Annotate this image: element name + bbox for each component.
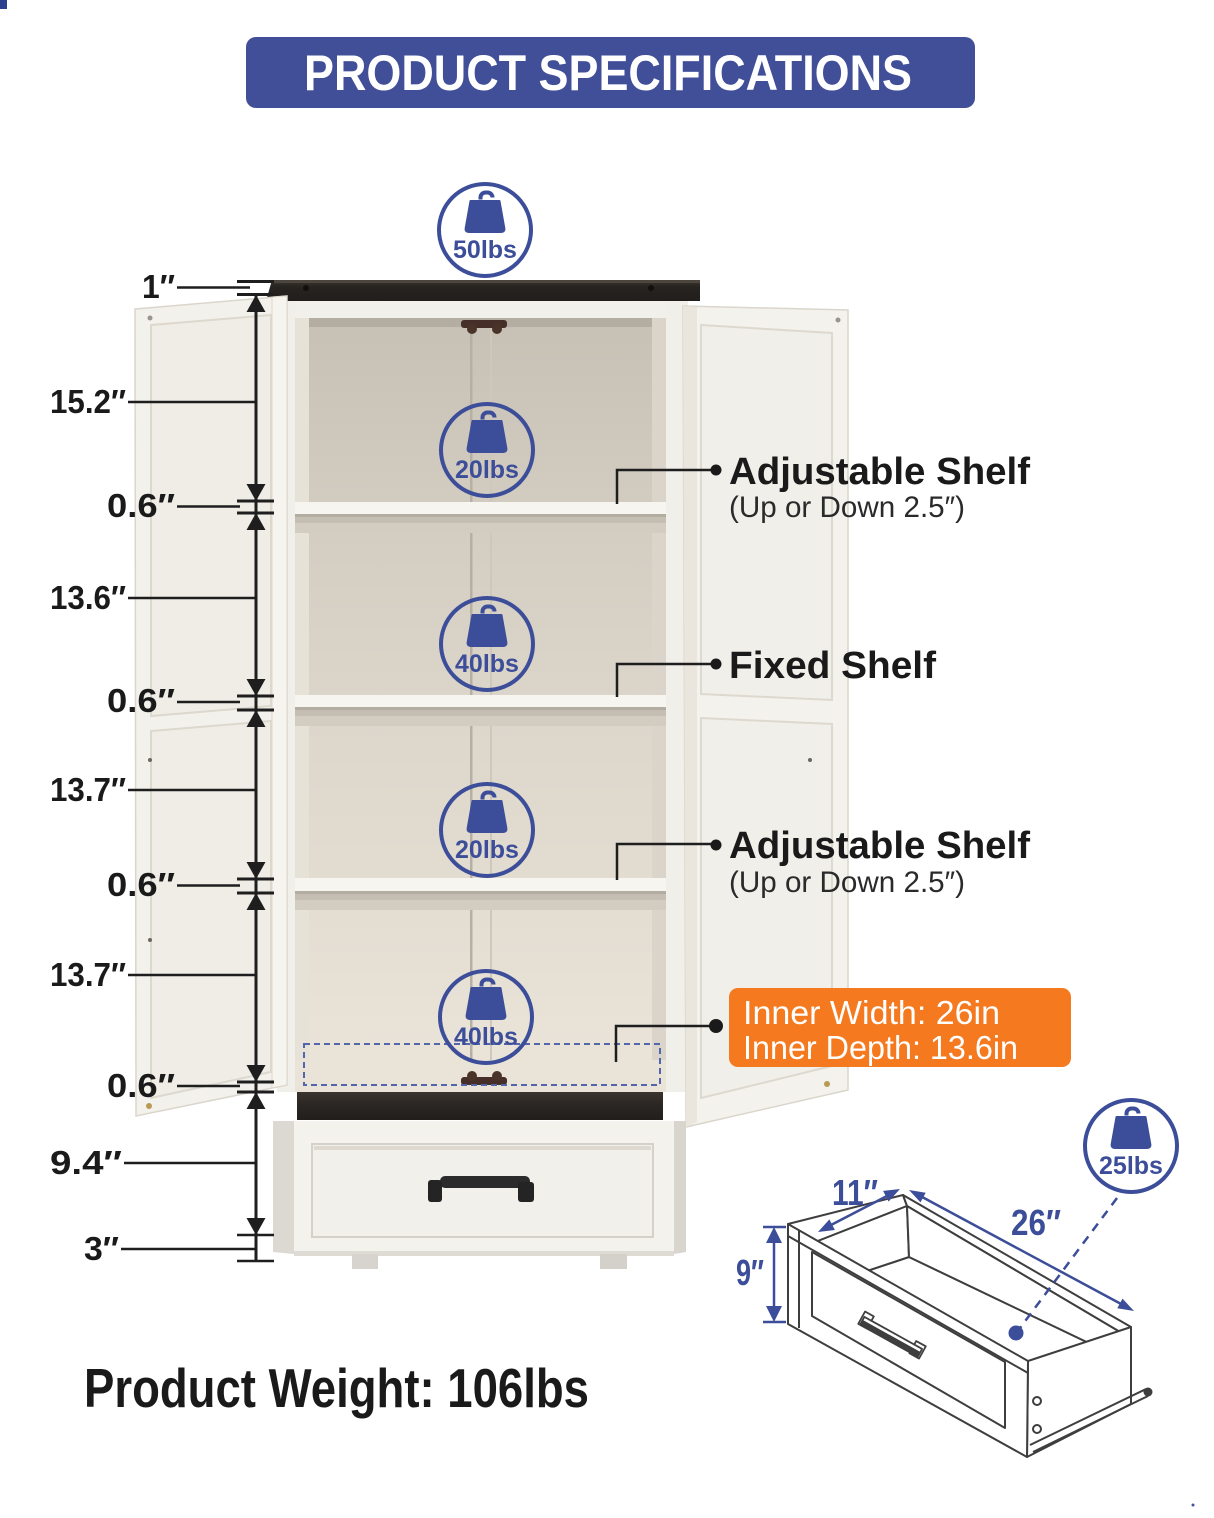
svg-text:PRODUCT SPECIFICATIONS: PRODUCT SPECIFICATIONS [304,45,912,101]
svg-text:Adjustable Shelf: Adjustable Shelf [729,451,1030,493]
svg-text:15.2″: 15.2″ [50,383,126,420]
svg-text:13.6″: 13.6″ [50,579,126,616]
svg-text:13.7″: 13.7″ [50,771,126,808]
svg-text:Product Weight: 106lbs: Product Weight: 106lbs [84,1357,589,1419]
svg-text:0.6″: 0.6″ [107,487,175,524]
svg-text:(Up or Down 2.5″): (Up or Down 2.5″) [729,491,965,524]
svg-text:50lbs: 50lbs [453,236,517,264]
svg-text:11″: 11″ [832,1172,878,1213]
svg-text:Adjustable Shelf: Adjustable Shelf [729,825,1030,867]
svg-text:Inner Depth: 13.6in: Inner Depth: 13.6in [743,1029,1018,1066]
svg-text:13.7″: 13.7″ [50,956,126,993]
svg-text:9″: 9″ [736,1252,764,1293]
svg-text:26″: 26″ [1011,1202,1061,1243]
svg-text:40lbs: 40lbs [455,650,519,678]
svg-text:25lbs: 25lbs [1099,1152,1163,1180]
svg-text:20lbs: 20lbs [455,836,519,864]
svg-text:9.4″: 9.4″ [50,1144,122,1181]
svg-text:0.6″: 0.6″ [107,682,175,719]
svg-text:Inner Width: 26in: Inner Width: 26in [743,994,1000,1031]
svg-text:3″: 3″ [84,1230,119,1267]
svg-text:(Up or Down 2.5″): (Up or Down 2.5″) [729,866,965,899]
svg-text:0.6″: 0.6″ [107,866,175,903]
svg-text:20lbs: 20lbs [455,456,519,484]
svg-text:1″: 1″ [142,268,175,305]
svg-text:Fixed Shelf: Fixed Shelf [729,645,936,687]
svg-text:0.6″: 0.6″ [107,1067,175,1104]
svg-text:40lbs: 40lbs [454,1023,518,1051]
